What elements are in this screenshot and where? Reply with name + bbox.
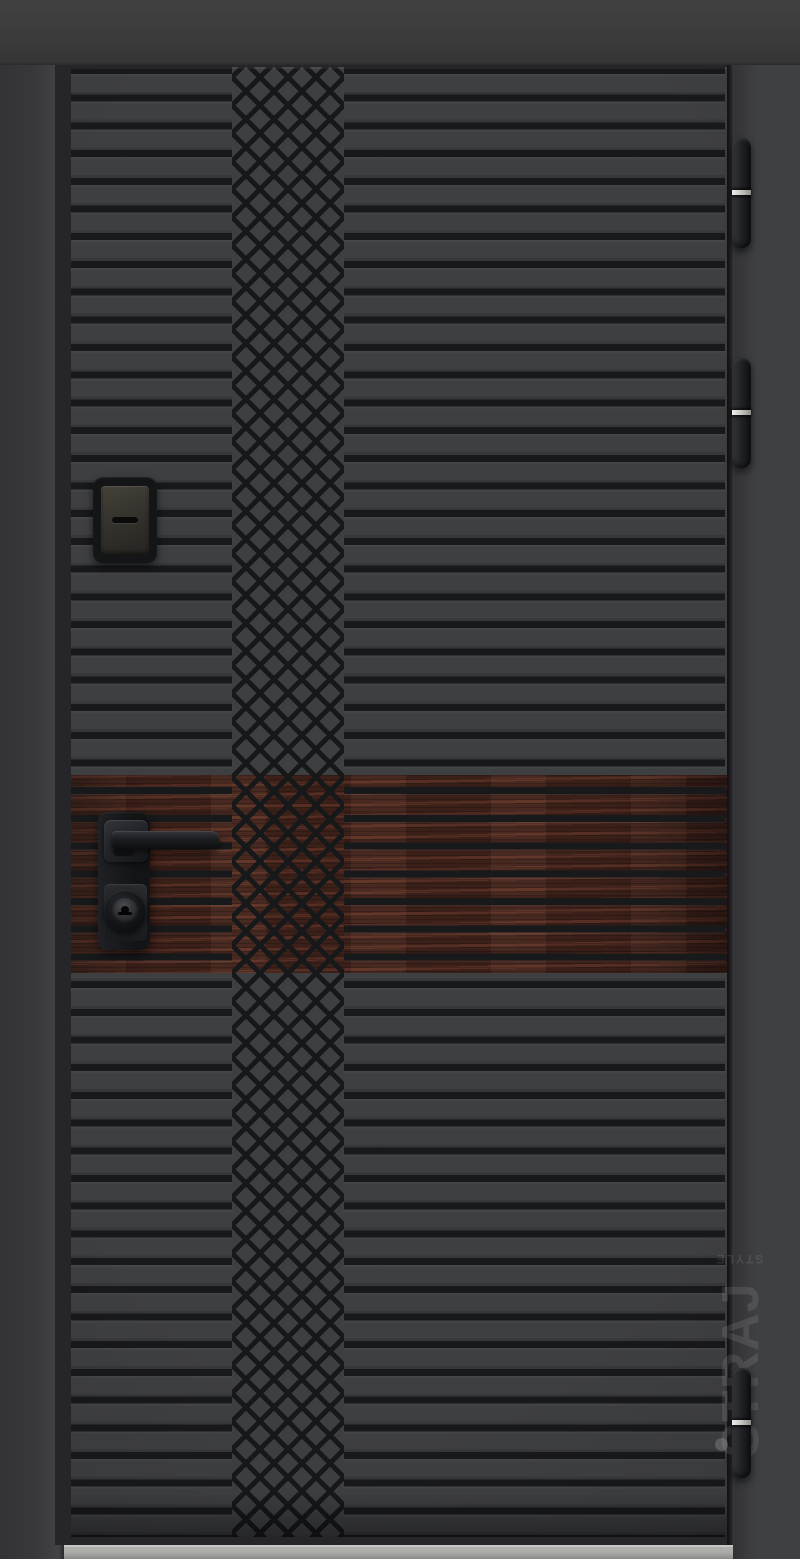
door-leaf (55, 65, 733, 1545)
groove-panel-right (344, 67, 725, 1537)
lever-handle (112, 831, 220, 849)
threshold (64, 1545, 733, 1559)
brand-dot-icon (715, 1438, 728, 1451)
brand-style-label: STYLE (710, 1252, 768, 1266)
diamond-lattice-column (232, 67, 344, 1537)
hinge-ring (732, 410, 751, 415)
keyhole-slot-icon (112, 517, 138, 523)
hinge-top (732, 138, 751, 248)
hinge-middle (732, 358, 751, 468)
hinge-ring (732, 1420, 751, 1425)
door-frame-top (0, 0, 800, 65)
hinge-bottom (732, 1368, 751, 1478)
door-face (71, 67, 727, 1537)
door-product-photo: STYLE STRAJ (0, 0, 800, 1559)
keyhole-tail (118, 912, 132, 915)
keyhole-escutcheon (93, 477, 157, 563)
cylinder-lock (104, 890, 146, 932)
cylinder-core (112, 898, 138, 924)
keyhole-plate (101, 486, 149, 554)
hinge-ring (732, 190, 751, 195)
groove-panel-left (71, 67, 232, 1537)
